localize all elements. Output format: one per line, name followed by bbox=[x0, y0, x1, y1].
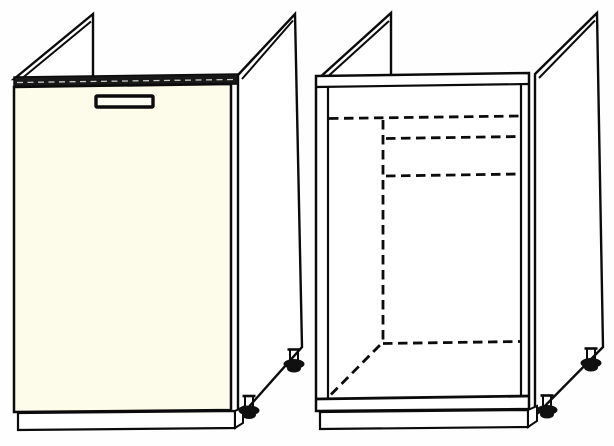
cabinet-drawing-canvas bbox=[0, 0, 614, 446]
cabinet-drawing bbox=[0, 0, 614, 446]
right-side-panel bbox=[535, 13, 603, 416]
face-frame bbox=[316, 73, 529, 411]
hidden-back-rail-edge-2 bbox=[386, 174, 520, 176]
door-handle bbox=[96, 96, 153, 107]
assembled-cabinet-view bbox=[14, 14, 305, 430]
left-side-panel bbox=[318, 13, 391, 80]
cabinet-door bbox=[14, 84, 231, 412]
left-side-panel bbox=[14, 14, 93, 80]
hidden-back-rail-edge-1 bbox=[386, 137, 520, 139]
right-side-panel bbox=[238, 14, 302, 419]
carcass-cabinet-view bbox=[316, 13, 603, 429]
